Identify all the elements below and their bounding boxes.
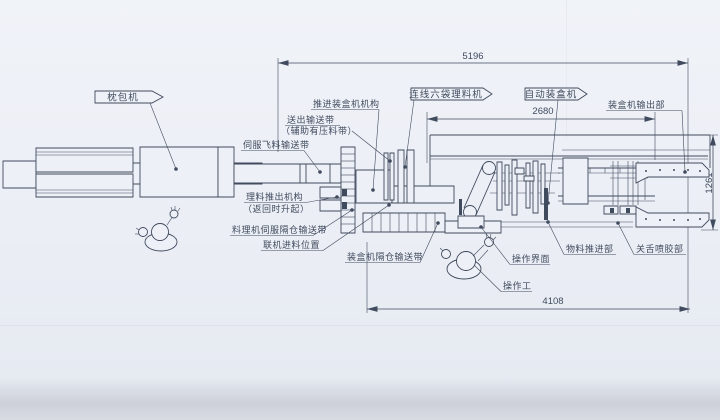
svg-text:理料推出机构: 理料推出机构 [246,191,303,202]
svg-text:装盒机输出部: 装盒机输出部 [608,99,665,110]
operator-figure-left [135,206,180,251]
cartoner-output-plates [636,163,709,227]
dim-line-length-value: 4108 [542,296,563,307]
dim-overall-length-value: 5196 [462,51,483,62]
svg-text:联机进料位置: 联机进料位置 [263,239,320,250]
svg-text:推进装盒机机构: 推进装盒机机构 [313,98,380,109]
operator-figure-right [440,234,496,279]
flag-auto-cartoner-text: 自动装盒机 [525,89,578,101]
svg-text:操作工: 操作工 [503,280,532,291]
svg-text:（返回时升起）: （返回时升起） [243,203,310,214]
svg-text:关舌喷胶部: 关舌喷胶部 [636,243,684,254]
callout-material-push-section: 物料推进部 [546,220,616,254]
svg-text:伺服飞料输送带: 伺服飞料输送带 [243,139,310,150]
dimension-cartoner-frame-length: 2680 [427,106,655,163]
scanned-engineering-drawing: { "drawing": { "title_flags": { "pillow_… [0,0,720,420]
pusher-bar-left [459,199,462,215]
svg-text:装盒机隔仓输送带: 装盒机隔仓输送带 [347,251,423,262]
svg-text:操作界面: 操作界面 [512,253,550,264]
svg-text:物料推进部: 物料推进部 [566,243,614,254]
callout-outfeed-conveyor: 送出输送带 （辅助有压料带） [281,114,392,163]
sorter-infeed-section [356,150,454,203]
transfer-arm [458,162,496,229]
servo-fly-conveyor [234,164,341,183]
pillow-packer-machine [3,147,262,197]
svg-text:送出输送带: 送出输送带 [287,114,335,125]
machine-line-layout-drawing: 5196 2680 4108 1261 [0,0,720,420]
flag-inline-six-bag-sorter: 连线六袋理料机 [403,88,492,169]
callout-operator: 操作工 [474,265,532,292]
svg-text:（辅助有压料带）: （辅助有压料带） [281,125,357,136]
svg-text:料理机伺服隔仓输送带: 料理机伺服隔仓输送带 [232,224,327,235]
flag-inline-six-bag-sorter-text: 连线六袋理料机 [409,89,483,101]
dim-cartoner-frame-length-value: 2680 [532,106,553,117]
flag-pillow-machine-text: 枕包机 [107,92,139,104]
